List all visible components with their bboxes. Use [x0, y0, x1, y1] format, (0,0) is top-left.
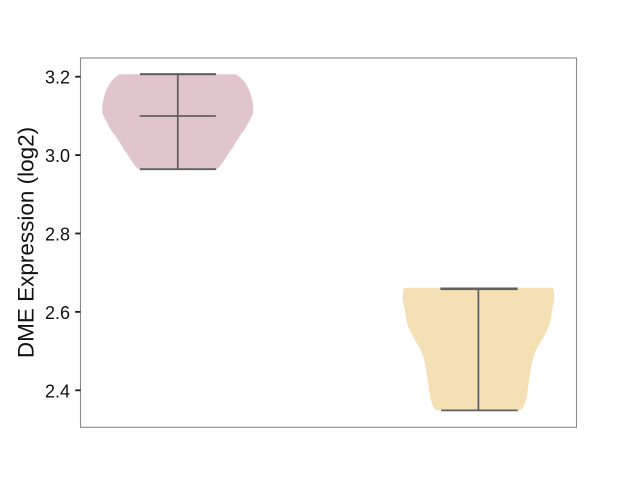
svg-text:3.2: 3.2	[45, 68, 70, 88]
svg-text:2.8: 2.8	[45, 225, 70, 245]
svg-text:3.0: 3.0	[45, 146, 70, 166]
svg-text:2.6: 2.6	[45, 303, 70, 323]
svg-text:DME Expression (log2): DME Expression (log2)	[14, 127, 39, 358]
svg-text:2.4: 2.4	[45, 381, 70, 401]
